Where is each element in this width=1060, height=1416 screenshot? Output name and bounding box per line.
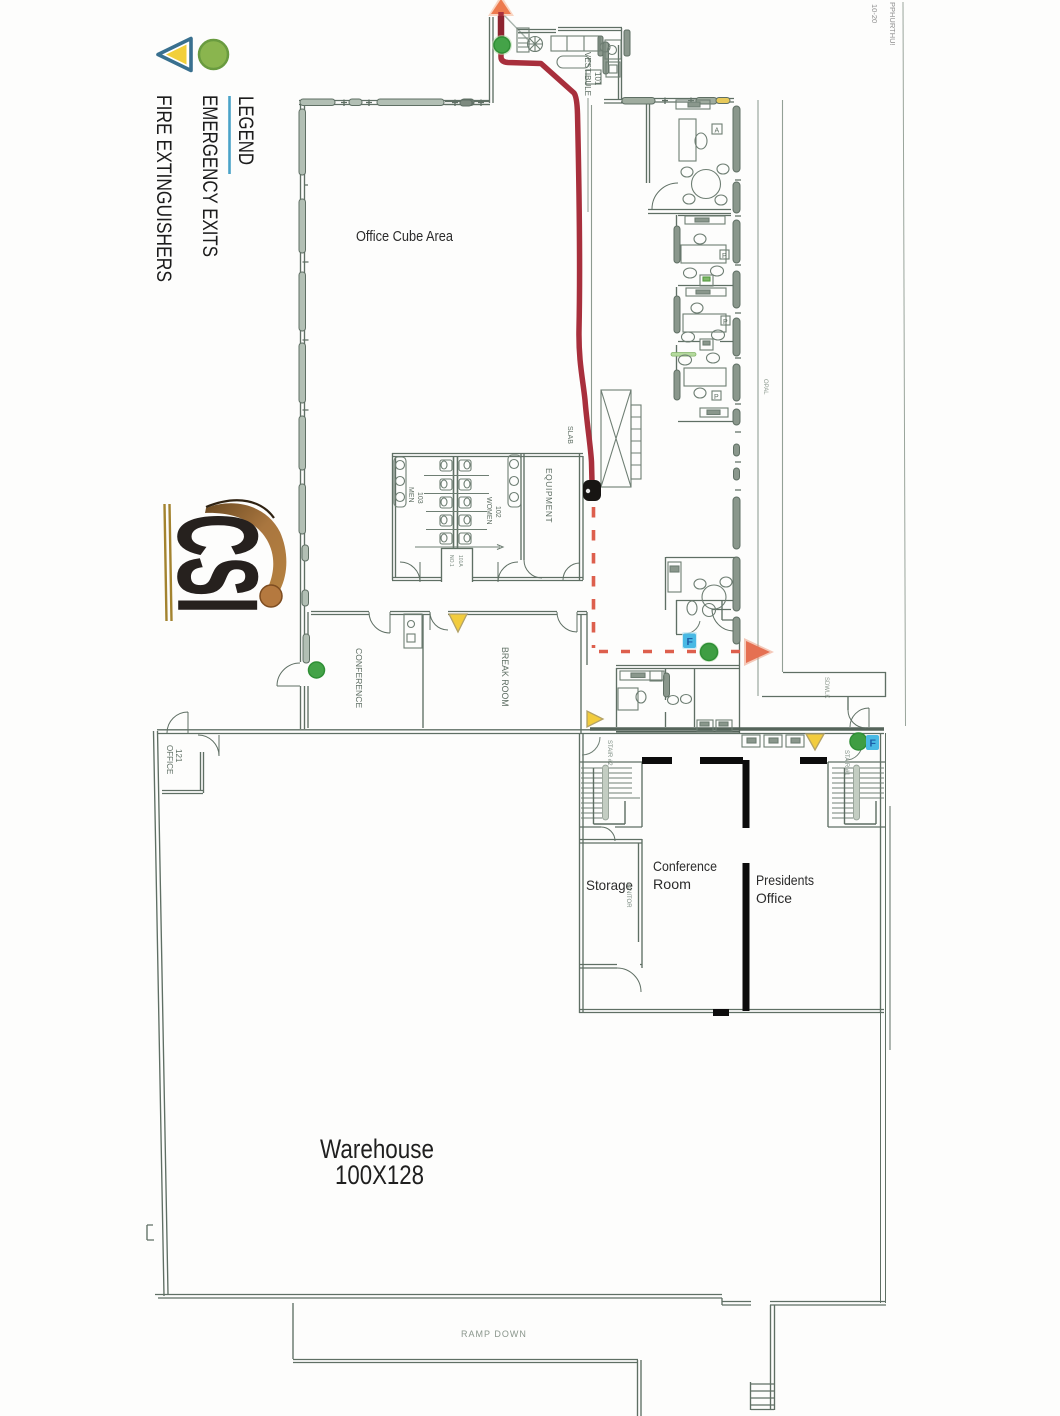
svg-text:RAMP DOWN: RAMP DOWN [461,1329,527,1339]
svg-text:LEGEND: LEGEND [234,96,257,165]
svg-text:OFFICE: OFFICE [165,745,174,774]
svg-text:F: F [687,636,694,648]
svg-text:EQUIPMENT: EQUIPMENT [544,468,554,523]
svg-text:NO.1: NO.1 [448,555,454,567]
svg-text:VESTIBULE: VESTIBULE [583,52,592,96]
svg-text:BREAK ROOM: BREAK ROOM [500,647,510,707]
svg-text:PPHURTHU!: PPHURTHU! [888,2,897,46]
svg-text:CONFERENCE: CONFERENCE [354,648,364,708]
svg-text:Presidents: Presidents [756,872,814,888]
svg-text:JANITOR: JANITOR [625,882,631,908]
svg-text:MEN: MEN [407,487,414,503]
svg-text:STAIR #2: STAIR #2 [606,740,612,766]
svg-text:Office: Office [756,890,792,906]
svg-text:P: P [714,394,719,401]
svg-text:A: A [715,128,720,135]
svg-text:P: P [723,319,728,326]
svg-text:Office Cube Area: Office Cube Area [356,229,454,245]
svg-text:10-20: 10-20 [870,4,879,23]
svg-text:SDWLK: SDWLK [823,677,829,698]
svg-text:SLAB: SLAB [566,426,573,444]
svg-text:FIRE EXTINGUISHERS: FIRE EXTINGUISHERS [152,95,175,282]
svg-text:F: F [870,738,877,750]
svg-text:121: 121 [174,749,183,763]
svg-text:100X128: 100X128 [335,1160,424,1190]
svg-text:102: 102 [494,506,501,518]
svg-text:Room: Room [653,876,691,892]
svg-text:103: 103 [416,492,423,504]
svg-text:CSI: CSI [155,514,280,614]
svg-text:101A: 101A [457,555,463,567]
svg-text:101: 101 [593,72,602,86]
svg-text:EMERGENCY EXITS: EMERGENCY EXITS [198,95,221,257]
svg-text:WOMEN: WOMEN [485,497,492,525]
svg-text:STAIR #1: STAIR #1 [843,750,849,776]
svg-text:P: P [722,253,727,260]
svg-text:Conference: Conference [653,858,717,874]
svg-text:OPAL: OPAL [762,379,768,395]
